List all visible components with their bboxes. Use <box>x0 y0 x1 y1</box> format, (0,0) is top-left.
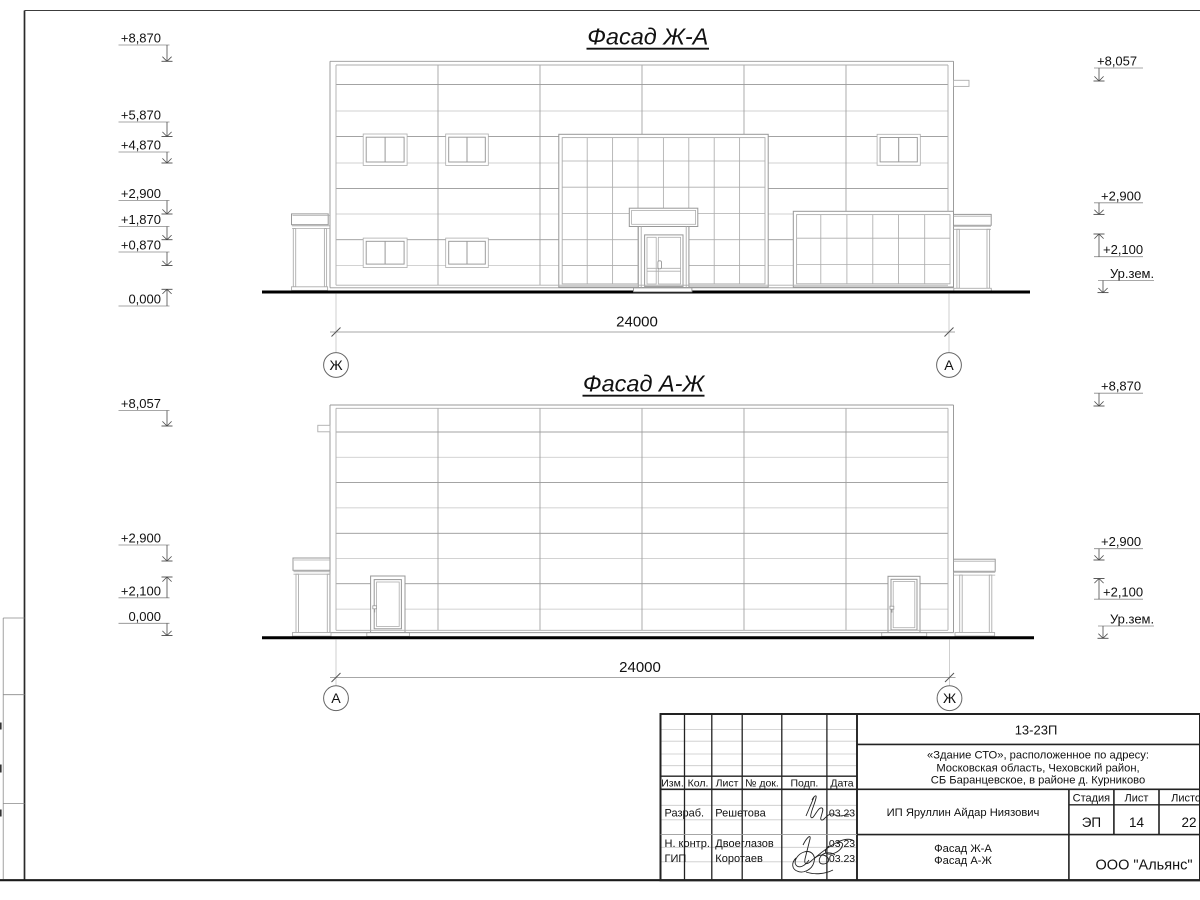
svg-text:+2,900: +2,900 <box>1101 188 1141 203</box>
svg-text:ЭП: ЭП <box>1082 815 1101 830</box>
svg-text:Изм.: Изм. <box>661 777 684 789</box>
svg-text:+2,100: +2,100 <box>1103 585 1143 600</box>
svg-text:+2,900: +2,900 <box>1101 534 1141 549</box>
svg-text:Н. контр.: Н. контр. <box>665 838 710 850</box>
svg-text:Двоеглазов: Двоеглазов <box>715 838 774 850</box>
svg-text:24000: 24000 <box>616 314 658 331</box>
svg-text:Коротаев: Коротаев <box>715 853 763 865</box>
svg-text:+1,870: +1,870 <box>121 212 161 227</box>
svg-text:СБ Баранцевское, в районе д. К: СБ Баранцевское, в районе д. Курниково <box>931 775 1145 787</box>
svg-text:03.23: 03.23 <box>829 853 855 865</box>
svg-text:+2,900: +2,900 <box>121 186 161 201</box>
svg-text:ИП Яруллин Айдар Ниязович: ИП Яруллин Айдар Ниязович <box>887 807 1040 819</box>
svg-text:Фасад Ж-А: Фасад Ж-А <box>587 24 708 50</box>
svg-text:А: А <box>944 358 954 374</box>
svg-text:Лист: Лист <box>716 777 739 789</box>
svg-text:Фасад Ж-А: Фасад Ж-А <box>934 843 992 855</box>
svg-text:Дата: Дата <box>830 777 853 789</box>
svg-text:24000: 24000 <box>619 659 661 676</box>
svg-text:+8,057: +8,057 <box>121 396 161 411</box>
svg-text:+5,870: +5,870 <box>121 108 161 123</box>
svg-text:+8,870: +8,870 <box>1101 379 1141 394</box>
svg-text:Ур.зем.: Ур.зем. <box>1110 266 1154 281</box>
svg-text:«Здание СТО», расположенное по: «Здание СТО», расположенное по адресу: <box>927 750 1149 762</box>
svg-text:Фасад А-Ж: Фасад А-Ж <box>934 855 992 867</box>
svg-text:№ док.: № док. <box>745 777 779 789</box>
svg-text:+2,900: +2,900 <box>121 531 161 546</box>
svg-text:0,000: 0,000 <box>128 292 161 307</box>
svg-text:+0,870: +0,870 <box>121 238 161 253</box>
svg-text:Стадия: Стадия <box>1073 792 1111 804</box>
svg-text:+8,870: +8,870 <box>121 31 161 46</box>
svg-text:+8,057: +8,057 <box>1097 54 1137 69</box>
svg-text:22: 22 <box>1181 815 1196 830</box>
svg-text:Московская область, Чеховский: Московская область, Чеховский район, <box>936 762 1139 774</box>
svg-text:Ж: Ж <box>943 691 956 707</box>
svg-text:Подп.: Подп. <box>790 777 818 789</box>
svg-text:А: А <box>331 691 341 707</box>
svg-text:Фасад А-Ж: Фасад А-Ж <box>583 371 706 397</box>
svg-text:Лист: Лист <box>1125 792 1149 804</box>
svg-text:Разраб.: Разраб. <box>665 808 705 820</box>
svg-text:Решетова: Решетова <box>715 808 766 820</box>
svg-text:+2,100: +2,100 <box>121 583 161 598</box>
svg-text:Кол.: Кол. <box>688 777 709 789</box>
svg-text:14: 14 <box>1129 815 1145 830</box>
svg-text:0,000: 0,000 <box>128 609 161 624</box>
svg-text:+4,870: +4,870 <box>121 138 161 153</box>
svg-text:13-23П: 13-23П <box>1015 723 1058 738</box>
svg-text:ООО "Альянс": ООО "Альянс" <box>1096 858 1193 874</box>
svg-text:Листов: Листов <box>1171 792 1200 804</box>
svg-text:Ур.зем.: Ур.зем. <box>1110 612 1154 627</box>
svg-text:Ж: Ж <box>329 358 342 374</box>
svg-text:+2,100: +2,100 <box>1103 242 1143 257</box>
svg-text:ГИП: ГИП <box>665 853 687 865</box>
